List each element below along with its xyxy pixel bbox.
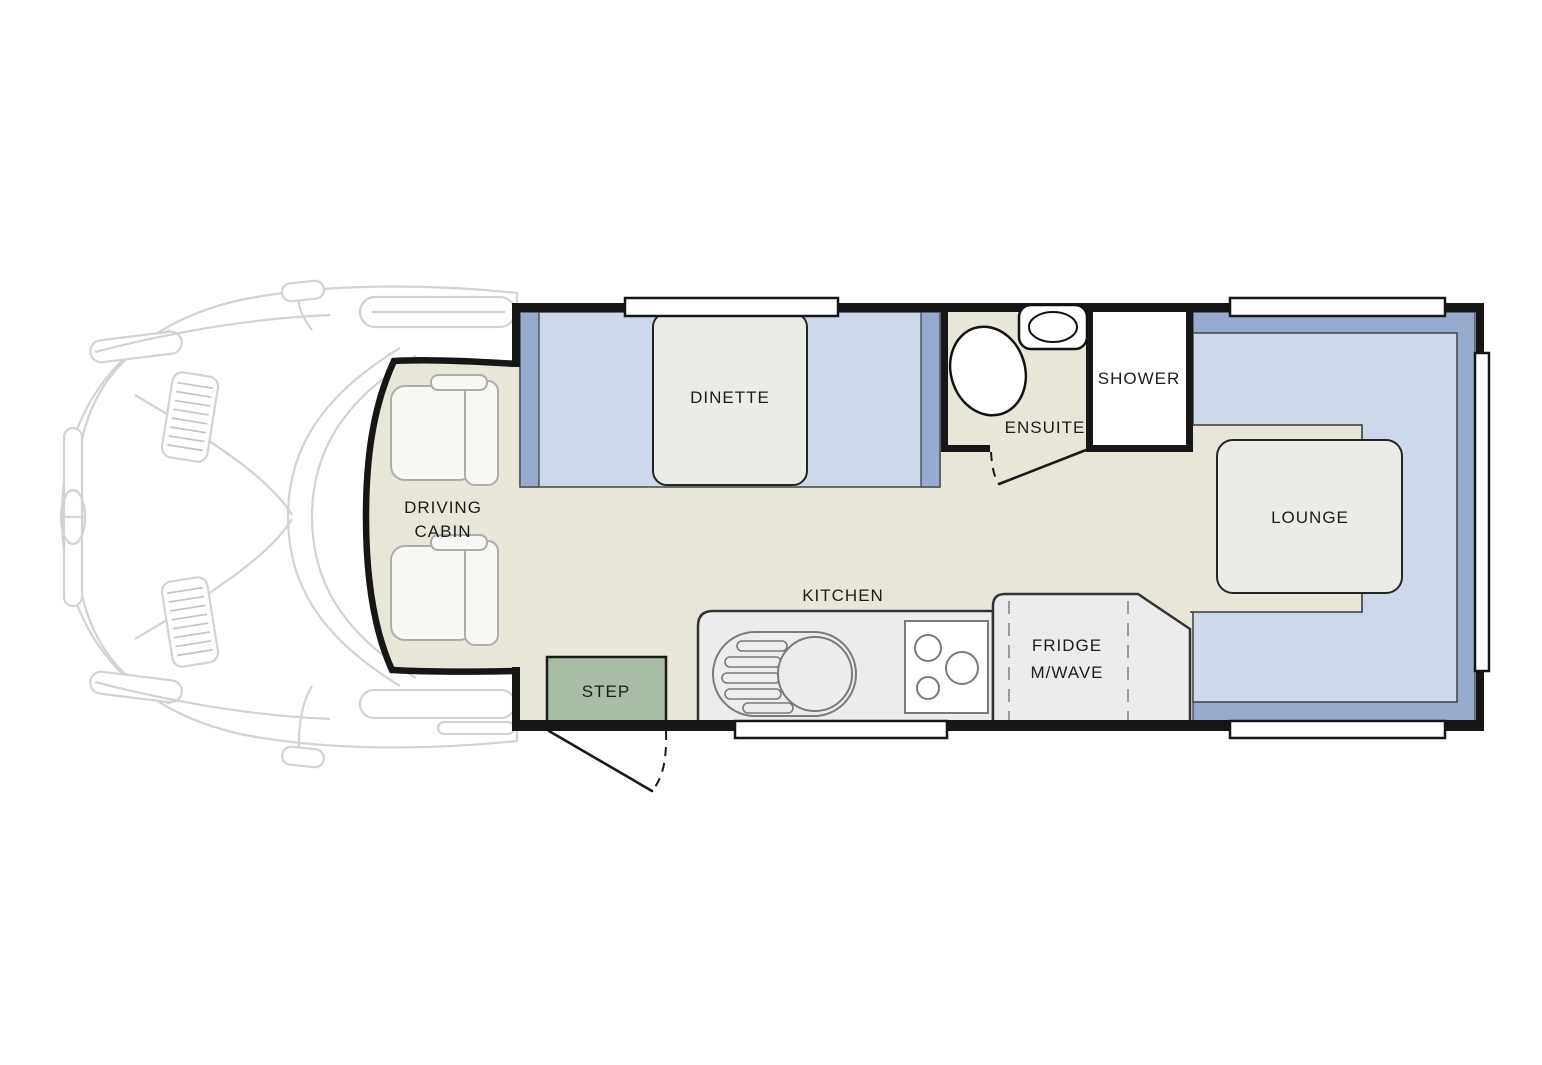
wall-shower-bottom	[1086, 445, 1193, 452]
wall-ensuite-left	[941, 311, 948, 452]
drainer-bar	[722, 673, 780, 683]
burner	[915, 635, 941, 661]
step-label: STEP	[582, 682, 630, 701]
sink-bowl	[778, 637, 852, 711]
driving-cabin-label-line1: DRIVING	[404, 498, 482, 517]
drainer-bar	[725, 657, 781, 667]
window-kitchen	[735, 721, 947, 738]
driver-seat	[391, 375, 498, 485]
dinette-label: DINETTE	[690, 388, 770, 407]
passenger-seat	[391, 535, 498, 645]
wall-ensuite-bottom	[941, 445, 990, 452]
lounge-label: LOUNGE	[1271, 508, 1349, 527]
dinette-backrest-right	[921, 312, 940, 487]
fridge-label-line2: M/WAVE	[1030, 663, 1103, 682]
shower-label: SHOWER	[1098, 369, 1181, 388]
ensuite-label: ENSUITE	[1005, 418, 1086, 437]
fridge-cabinet	[993, 594, 1190, 728]
fridge-label-line1: FRIDGE	[1032, 636, 1102, 655]
floorplan-canvas: DINETTE ENSUITE SHOWER LOUNGE KITCHEN FR…	[0, 0, 1542, 1065]
burner	[946, 652, 978, 684]
roof-panel-top	[360, 297, 515, 327]
window-lounge-bottom	[1230, 721, 1445, 738]
drainer-bar	[743, 703, 793, 713]
wall-left-upper	[512, 303, 520, 367]
window-lounge-top	[1230, 298, 1445, 316]
kitchen-label: KITCHEN	[802, 586, 884, 605]
kitchen-area	[698, 611, 993, 728]
wall-left-lower	[512, 667, 520, 731]
sink-icon	[713, 632, 856, 716]
drainer-bar	[737, 641, 787, 651]
burner	[917, 677, 939, 699]
window-dinette	[625, 298, 838, 316]
driving-cabin-label-line2: CABIN	[415, 522, 472, 541]
drainer-bar	[725, 689, 781, 699]
cooktop-icon	[905, 621, 988, 713]
entry-door-swing	[549, 731, 666, 791]
wall-shower-right	[1186, 311, 1193, 452]
dinette-backrest-left	[520, 312, 539, 487]
window-rear	[1475, 353, 1489, 671]
motorhome-floorplan: DINETTE ENSUITE SHOWER LOUNGE KITCHEN FR…	[0, 0, 1542, 1065]
basin-icon	[1019, 305, 1087, 349]
fridge-area	[993, 594, 1190, 728]
